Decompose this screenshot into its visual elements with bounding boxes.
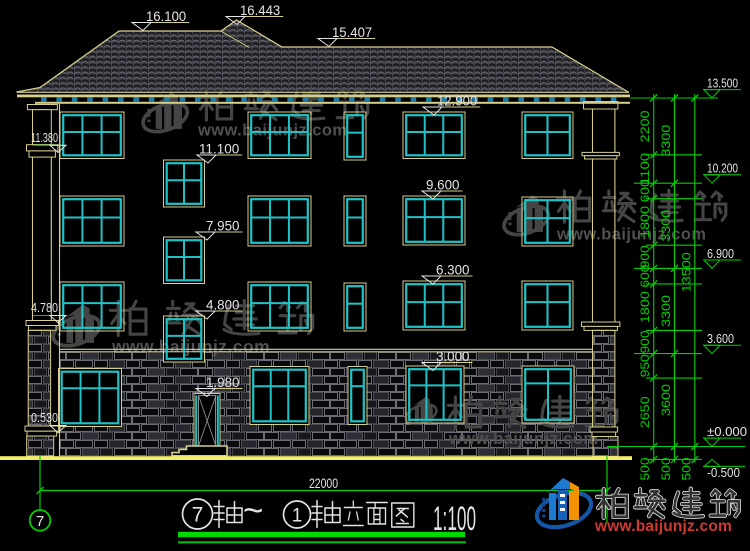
svg-text:1: 1 <box>292 506 303 527</box>
svg-text:4.780: 4.780 <box>31 301 58 315</box>
svg-text:15.407: 15.407 <box>332 25 372 40</box>
svg-text:13500: 13500 <box>679 252 693 292</box>
svg-text:16.100: 16.100 <box>146 9 186 24</box>
svg-text:500: 500 <box>679 457 693 480</box>
svg-text:500: 500 <box>638 457 652 480</box>
svg-text:2200: 2200 <box>638 110 652 142</box>
svg-text:13.500: 13.500 <box>707 76 738 91</box>
svg-text:3600: 3600 <box>659 384 673 416</box>
svg-text:500: 500 <box>659 457 673 480</box>
svg-text:3.000: 3.000 <box>436 349 470 364</box>
svg-text:www.baijunjz.com: www.baijunjz.com <box>594 518 732 535</box>
svg-text:3300: 3300 <box>659 209 673 241</box>
svg-text:www.baijunjz.com: www.baijunjz.com <box>556 226 706 244</box>
svg-text:22000: 22000 <box>309 476 338 491</box>
svg-text:4.800: 4.800 <box>206 298 240 313</box>
svg-text:16.443: 16.443 <box>240 3 280 18</box>
svg-text:7.950: 7.950 <box>206 219 240 234</box>
svg-text:10.200: 10.200 <box>707 161 738 176</box>
svg-text:950: 950 <box>638 354 652 377</box>
svg-text:1800: 1800 <box>638 206 652 238</box>
svg-text:9.600: 9.600 <box>426 178 460 193</box>
svg-text:12.900: 12.900 <box>437 94 477 109</box>
svg-text:6.300: 6.300 <box>436 263 470 278</box>
svg-text:2650: 2650 <box>638 396 652 428</box>
svg-text:7: 7 <box>192 504 204 527</box>
svg-text:www.baijunjz.com: www.baijunjz.com <box>111 337 270 357</box>
svg-text:11.100: 11.100 <box>199 142 239 157</box>
svg-text:3300: 3300 <box>659 124 673 156</box>
svg-text:3.600: 3.600 <box>707 331 734 346</box>
svg-text:600: 600 <box>638 179 652 202</box>
svg-text:11.380: 11.380 <box>31 131 58 145</box>
svg-text:1800: 1800 <box>638 291 652 323</box>
svg-text:1.980: 1.980 <box>206 375 240 390</box>
svg-text:www.baijunjz.com: www.baijunjz.com <box>448 430 598 448</box>
svg-text:-0.500: -0.500 <box>707 465 740 480</box>
svg-text:7: 7 <box>36 513 44 530</box>
svg-text:6.900: 6.900 <box>707 246 734 261</box>
svg-text:600: 600 <box>638 264 652 287</box>
svg-text:~: ~ <box>243 491 263 530</box>
svg-text:±0.000: ±0.000 <box>707 424 747 439</box>
svg-text:900: 900 <box>638 330 652 353</box>
svg-text:0.530: 0.530 <box>31 411 58 425</box>
svg-text:www.baijunjz.com: www.baijunjz.com <box>197 122 347 140</box>
svg-text:3300: 3300 <box>659 295 673 327</box>
